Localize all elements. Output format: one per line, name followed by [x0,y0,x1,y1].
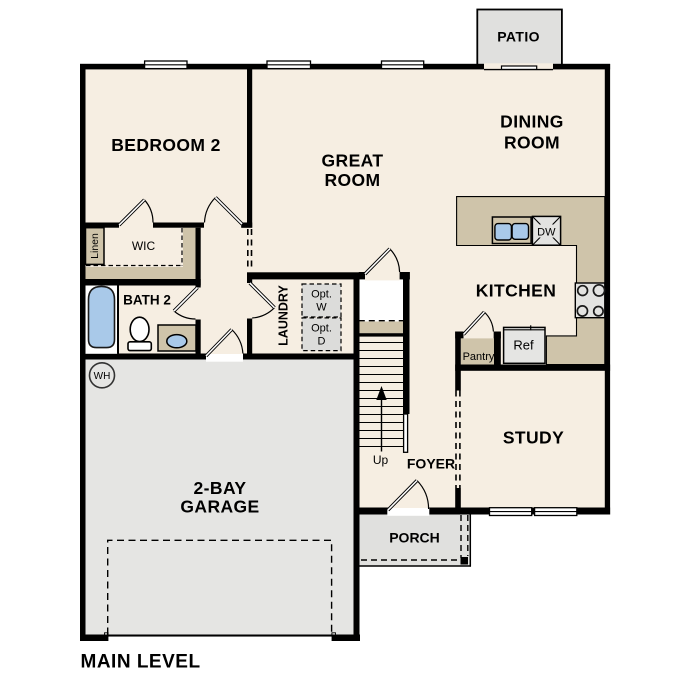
svg-text:KITCHEN: KITCHEN [476,281,557,301]
svg-text:D: D [318,336,326,348]
svg-text:Ref: Ref [513,338,534,353]
svg-text:W: W [316,302,327,314]
svg-text:BATH 2: BATH 2 [123,293,171,308]
svg-text:2-BAY: 2-BAY [194,478,247,498]
svg-text:ROOM: ROOM [504,133,560,153]
svg-text:ROOM: ROOM [324,170,380,190]
svg-text:PORCH: PORCH [389,530,440,546]
svg-text:DW: DW [537,227,556,239]
svg-text:STUDY: STUDY [503,428,564,448]
svg-text:GREAT: GREAT [322,151,384,171]
svg-text:Opt.: Opt. [311,289,332,301]
svg-text:DINING: DINING [500,112,564,132]
svg-text:WH: WH [94,371,111,382]
svg-text:Pantry: Pantry [463,351,495,363]
svg-text:MAIN LEVEL: MAIN LEVEL [81,652,201,673]
svg-text:WIC: WIC [132,239,156,253]
svg-text:LAUNDRY: LAUNDRY [277,285,291,346]
svg-text:BEDROOM 2: BEDROOM 2 [111,135,221,155]
svg-text:FOYER: FOYER [407,456,455,472]
svg-text:PATIO: PATIO [497,28,540,44]
svg-text:GARAGE: GARAGE [180,497,259,517]
svg-text:Opt.: Opt. [311,323,332,335]
svg-text:Up: Up [373,453,389,467]
svg-text:Linen: Linen [89,233,101,259]
